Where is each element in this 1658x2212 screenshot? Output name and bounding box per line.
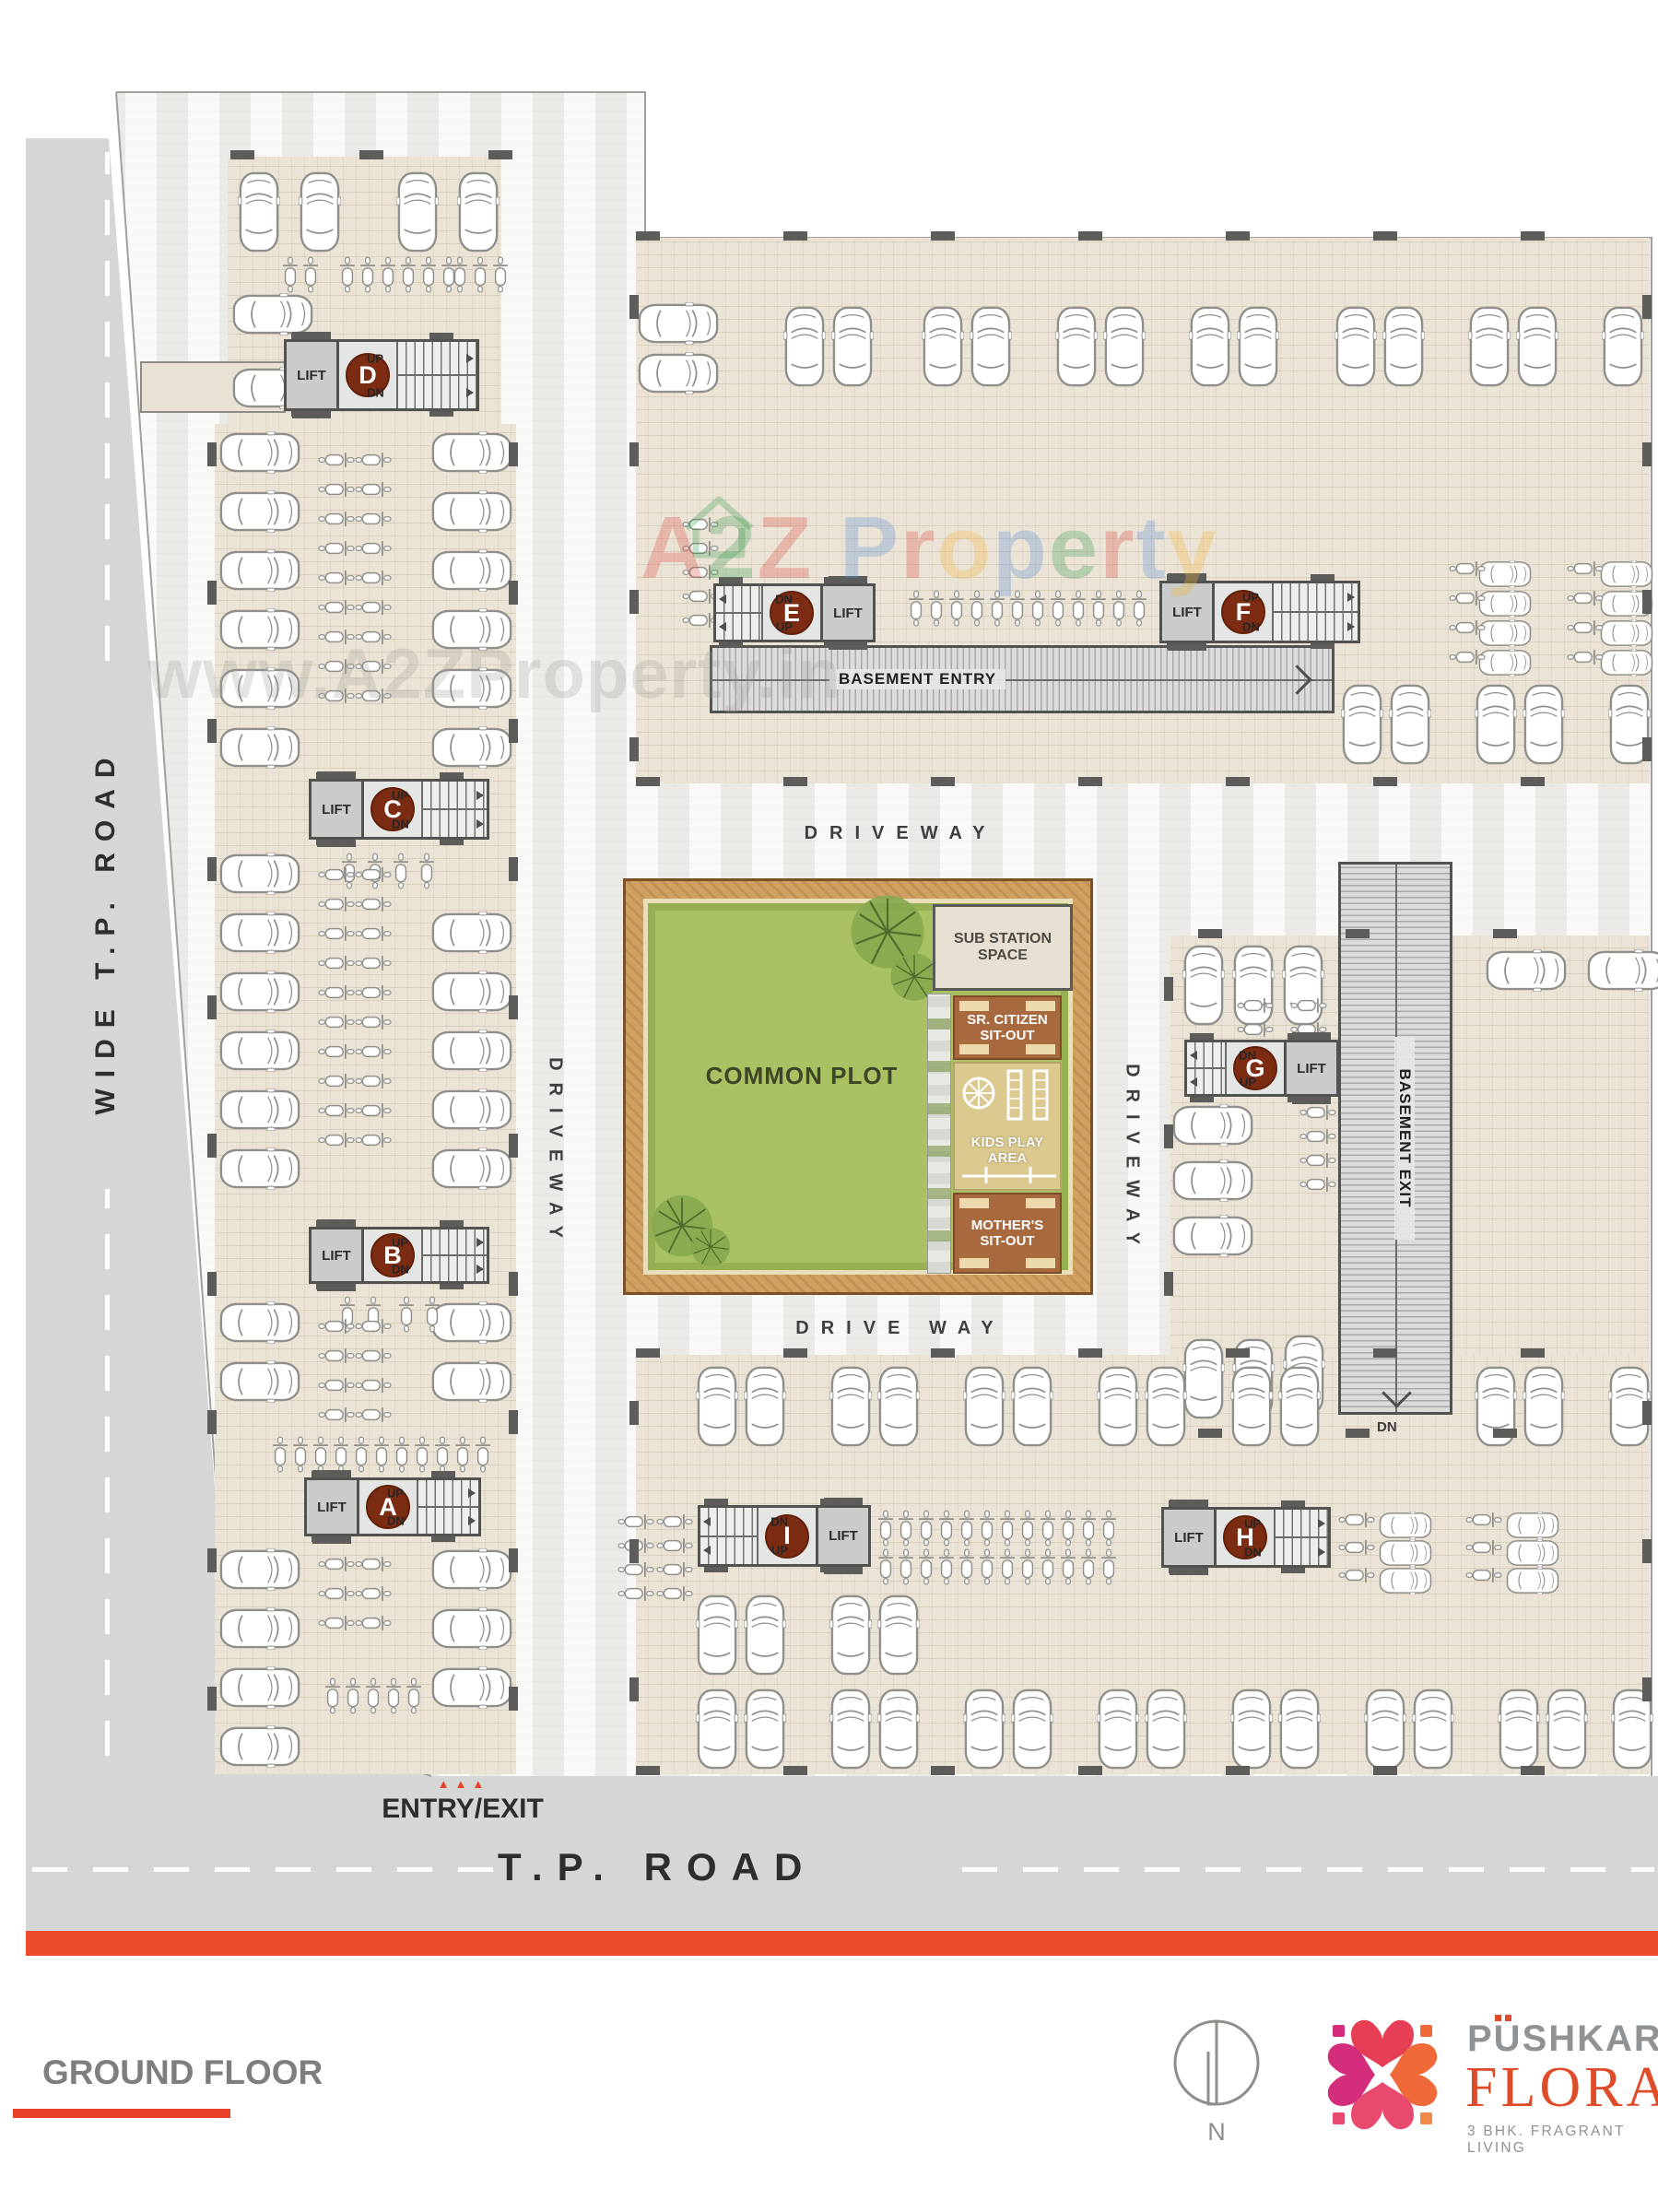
- stair-direction-label: UP: [1242, 591, 1259, 605]
- stair-lane-dn: DN: [1274, 613, 1358, 641]
- watermark-url: www.A2ZProperty.in: [147, 634, 841, 714]
- north-compass-icon: N: [1165, 2015, 1268, 2153]
- stair-direction-label: UP: [367, 351, 383, 365]
- core-H: LIFT H UP DN: [1161, 1507, 1331, 1568]
- stair-direction-label: UP: [392, 788, 408, 802]
- mothers-label-line1: MOTHER'S: [971, 1218, 1044, 1233]
- stair-lane-up: UP: [423, 1230, 487, 1256]
- stair-direction-label: DN: [1242, 620, 1260, 634]
- stair-lane-up: UP: [418, 1480, 478, 1508]
- lift-label: LIFT: [322, 802, 351, 818]
- brand-name-flora: FLORA: [1465, 2055, 1658, 2121]
- lift-box: LIFT: [1164, 1510, 1217, 1565]
- stair-lane-up: UP: [700, 1537, 757, 1565]
- stair-direction-label: UP: [392, 1235, 408, 1249]
- staircase: DN UP: [700, 1508, 758, 1564]
- driveway-label-top: DRIVEWAY: [767, 823, 1034, 844]
- lift-box: LIFT: [816, 1508, 868, 1564]
- watermark-brand: A2Z Property: [641, 498, 1218, 599]
- common-plot-label: COMMON PLOT: [691, 1062, 912, 1090]
- stair-lane-dn: DN: [423, 1256, 487, 1281]
- basement-exit-dn-label: DN: [1377, 1419, 1397, 1435]
- driveway-label-left: DRIVEWAY: [545, 1034, 566, 1274]
- staircase: UP DN: [1272, 583, 1358, 641]
- stair-direction-label: DN: [770, 1514, 788, 1528]
- kids-play-equipment-icon: [957, 1065, 1062, 1126]
- wide-tp-road-label: WIDE T.P. ROAD: [86, 673, 126, 1189]
- stair-lane-dn: DN: [423, 810, 487, 837]
- lift-label: LIFT: [1174, 1530, 1204, 1546]
- sub-station-space: SUB STATION SPACE: [933, 904, 1073, 991]
- mothers-sit-out: MOTHER'S SIT-OUT: [953, 1193, 1062, 1274]
- stair-lane-up: UP: [1276, 1510, 1328, 1538]
- site-plan-page: BASEMENT ENTRY BASEMENT EXIT DN COMMON P…: [0, 0, 1658, 2212]
- stair-direction-label: DN: [392, 817, 409, 830]
- stair-lane-up: UP: [1187, 1069, 1225, 1094]
- staircase: DN UP: [1187, 1042, 1227, 1094]
- stair-direction-label: DN: [367, 385, 384, 399]
- stair-direction-label: UP: [1244, 1516, 1261, 1530]
- stair-lane-dn: DN: [1187, 1042, 1225, 1069]
- stair-lane-up: UP: [398, 342, 476, 376]
- road-center-dash-bottom-1: [32, 1867, 516, 1872]
- lift-label: LIFT: [1297, 1061, 1326, 1077]
- road-center-dash-bottom-2: [962, 1867, 1654, 1872]
- stair-direction-label: UP: [776, 620, 793, 634]
- entrance-canopy-d: [140, 361, 286, 413]
- driveway-label-bottom: DRIVE WAY: [767, 1318, 1034, 1339]
- kids-play-label-line2: AREA: [988, 1150, 1028, 1166]
- garden-path-strip: [927, 994, 951, 1274]
- stair-lane-dn: DN: [700, 1508, 757, 1537]
- core-I: DN UP I LIFT: [698, 1505, 871, 1567]
- kids-play-area: KIDS PLAY AREA: [953, 1062, 1062, 1191]
- floor-title: GROUND FLOOR: [42, 2053, 323, 2092]
- mothers-label-line2: SIT-OUT: [980, 1233, 1034, 1249]
- lift-box: LIFT: [312, 782, 364, 837]
- road-edge-red-stripe: [26, 1931, 1658, 1956]
- stair-direction-label: UP: [1240, 1075, 1256, 1088]
- stair-direction-label: DN: [387, 1514, 405, 1528]
- driveway-label-right: DRIVEWAY: [1122, 1041, 1143, 1280]
- core-D: LIFT D UP DN: [284, 339, 479, 411]
- flora-flower-logo-icon: [1316, 2006, 1450, 2144]
- stair-direction-label: DN: [1244, 1545, 1262, 1559]
- stair-direction-label: DN: [392, 1262, 409, 1276]
- lift-label: LIFT: [829, 1528, 858, 1544]
- lift-label: LIFT: [317, 1500, 347, 1515]
- staircase: UP DN: [421, 782, 487, 837]
- pushkar-umlaut-dots: [1495, 2015, 1511, 2021]
- basement-exit-label: BASEMENT EXIT: [1394, 1037, 1415, 1240]
- lift-box: LIFT: [312, 1230, 364, 1281]
- sub-station-label-line2: SPACE: [978, 947, 1028, 964]
- kids-play-label-line1: KIDS PLAY: [971, 1135, 1044, 1150]
- basement-entry-label: BASEMENT ENTRY: [829, 669, 1005, 689]
- lift-label: LIFT: [1172, 605, 1202, 620]
- staircase: UP DN: [421, 1230, 487, 1281]
- brand-tagline: 3 BHK. FRAGRANT LIVING: [1467, 2124, 1658, 2157]
- sub-station-label-line1: SUB STATION: [954, 931, 1052, 947]
- core-C: LIFT C UP DN: [309, 779, 489, 840]
- staircase: UP DN: [1274, 1510, 1328, 1565]
- stair-direction-label: UP: [771, 1544, 788, 1558]
- core-B: LIFT B UP DN: [309, 1227, 489, 1284]
- stair-lane-up: UP: [423, 782, 487, 810]
- staircase: UP DN: [417, 1480, 478, 1534]
- brand-name-pushkar: PUSHKAR: [1467, 2018, 1658, 2060]
- entry-exit-label: ENTRY/EXIT: [370, 1794, 555, 1825]
- lift-box: LIFT: [1284, 1042, 1336, 1094]
- stair-direction-label: UP: [387, 1487, 404, 1500]
- north-letter: N: [1207, 2118, 1226, 2146]
- lift-box: LIFT: [287, 342, 339, 408]
- stair-lane-up: UP: [1274, 583, 1358, 613]
- lift-box: LIFT: [307, 1480, 359, 1534]
- parking-slab-left-strip: [215, 424, 516, 1774]
- entry-arrows-icon: ▲▲▲: [431, 1777, 496, 1791]
- lift-label: LIFT: [833, 606, 863, 621]
- stair-lane-dn: DN: [418, 1508, 478, 1534]
- stair-lane-dn: DN: [1276, 1538, 1328, 1565]
- staircase: UP DN: [396, 342, 476, 408]
- floor-title-underline: [13, 2109, 230, 2118]
- sr-citizen-label-line2: SIT-OUT: [980, 1028, 1034, 1043]
- core-A: LIFT A UP DN: [304, 1477, 481, 1536]
- sr-citizen-sit-out: SR. CITIZEN SIT-OUT: [953, 995, 1062, 1060]
- lift-label: LIFT: [322, 1248, 351, 1264]
- stair-lane-dn: DN: [398, 376, 476, 408]
- tp-road-surface: [26, 1776, 1658, 1931]
- seesaw-icon: [958, 1165, 1060, 1185]
- sr-citizen-label-line1: SR. CITIZEN: [967, 1012, 1048, 1028]
- stair-direction-label: DN: [1239, 1048, 1256, 1062]
- tp-road-label: T.P. ROAD: [498, 1845, 700, 1889]
- core-G: DN UP G LIFT: [1184, 1040, 1339, 1097]
- lift-label: LIFT: [297, 368, 326, 383]
